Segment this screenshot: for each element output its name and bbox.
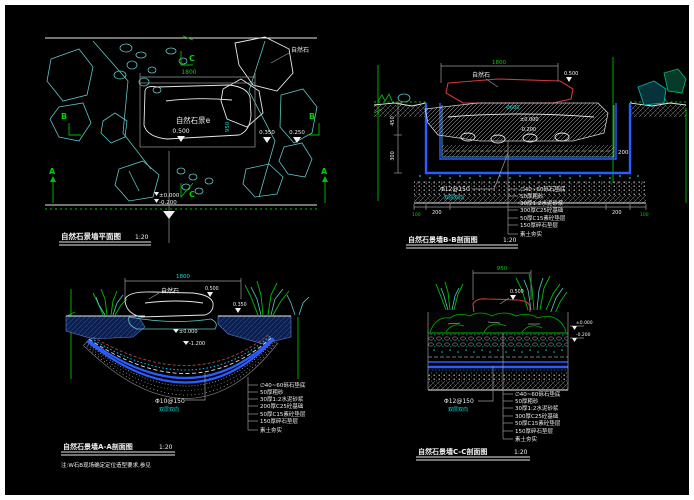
- cc-rebar-note: 双层双向: [448, 406, 468, 413]
- bb-dim-200-wall: 200: [618, 150, 629, 156]
- cc-callout-5: 50厚C15素砼垫层: [515, 419, 561, 427]
- cc-callout-3: 30厚1:2水泥砂浆: [515, 404, 559, 412]
- aa-callout-4: 200厚C25砼基础: [260, 402, 304, 410]
- bb-dim-300: 300: [390, 151, 396, 161]
- section-marker-a-right: A: [321, 167, 328, 176]
- bb-callout-1: ∅40~60砾石垫底: [520, 185, 566, 193]
- plan-elev-right2: 0.250: [289, 130, 305, 136]
- aa-bowl-layers: [83, 335, 278, 399]
- bb-callout-3: 30厚1:2水泥砂浆: [520, 199, 564, 207]
- bb-title-block: 自然石景墙B-B剖面图 1:20: [406, 235, 518, 248]
- cc-callout-1: ∅40~60砾石垫底: [515, 390, 561, 398]
- aa-elev-zero: ±0.000: [179, 329, 198, 335]
- plan-elev-stone: 0.500: [172, 128, 189, 135]
- aa-callout-7: 素土夯实: [260, 426, 283, 434]
- plan-title-block: 自然石景墙平面图 1:20: [59, 231, 151, 245]
- section-marker-b-right: B: [309, 112, 315, 121]
- plan-stone-label: 自然石: [291, 46, 309, 54]
- cc-callout-7: 素土夯实: [515, 435, 538, 443]
- bb-dim-top: 1800: [492, 60, 506, 66]
- plan-labels: 自然石 自然石景e 0.500 0.350 0.250 ±0.000 -0.20…: [154, 46, 309, 219]
- bb-dim-100-right: 100: [640, 212, 649, 218]
- cc-callout-6: 150厚碎石垫层: [515, 427, 553, 435]
- cc-rock-band: [428, 312, 568, 333]
- bb-dim-200-br: 200: [612, 210, 622, 216]
- cc-callout-2: 50厚粗砂: [515, 397, 539, 405]
- plan-center-text: 自然石景e: [176, 115, 211, 125]
- plan-title-scale: 1:20: [135, 234, 149, 241]
- aa-rebar-note: 双层双向: [159, 406, 179, 413]
- bb-dim-100-left: 100: [412, 212, 421, 218]
- bb-title: 自然石景墙B-B剖面图: [408, 235, 478, 244]
- plan-elev-neg: -0.200: [159, 200, 177, 206]
- bb-rebar-note: 双层双向: [444, 194, 464, 201]
- plan-dim-width: 1800: [181, 69, 196, 76]
- cc-right-elevations: ±0.000 -0.200: [570, 320, 593, 342]
- section-aa-drawing: 1800: [33, 259, 381, 481]
- plan-elev-zero: ±0.000: [159, 193, 180, 199]
- cad-sheet: 1800 950 自然石 自然石景e 0.500 0.350 0.250 ±0.…: [0, 0, 694, 500]
- plan-dim-height: 950: [225, 121, 231, 132]
- bb-callout-6: 150厚碎石垫层: [520, 221, 558, 229]
- aa-title: 自然石景墙A-A剖面图: [63, 442, 133, 451]
- aa-elev-neg: -1.200: [189, 341, 205, 347]
- aa-callout-5: 50厚C15素砼垫层: [260, 410, 306, 418]
- cc-title-scale: 1:20: [514, 449, 528, 456]
- cc-stone: 0.500: [473, 289, 530, 314]
- bb-dim-200-bl: 200: [432, 210, 442, 216]
- bb-elev-zero: ±0.000: [520, 117, 539, 123]
- bb-stone: [425, 79, 608, 143]
- aa-callout-1: ∅40~60砾石垫底: [260, 381, 306, 389]
- cc-rebar: Φ12@150: [444, 398, 474, 405]
- cc-elev-zero: ±0.000: [576, 320, 593, 326]
- cc-plants: [436, 274, 567, 316]
- section-marker-b-left: B: [61, 112, 67, 121]
- aa-rebar: Φ10@150: [155, 398, 185, 405]
- aa-callout-6: 150厚碎石垫层: [260, 417, 298, 425]
- bb-elev-neg: -0.200: [520, 127, 536, 133]
- aa-callout-2: 50厚粗砂: [260, 388, 284, 396]
- cc-dim-top: 950: [497, 266, 508, 272]
- bb-callout-4: 300厚C25砼基础: [520, 206, 564, 214]
- cc-title: 自然石景墙C-C剖面图: [418, 447, 487, 456]
- aa-title-block: 自然石景墙A-A剖面图 1:20 注:W石B现场确定定位造型要求,参见: [61, 442, 175, 469]
- cc-callout-4: 300厚C25砼基础: [515, 412, 559, 420]
- section-cc-drawing: 950 0.500: [388, 258, 694, 466]
- cc-elev-neg: -0.200: [576, 332, 591, 338]
- plan-view-drawing: 1800 950 自然石 自然石景e 0.500 0.350 0.250 ±0.…: [33, 21, 345, 259]
- aa-elev-right: 0.350: [233, 302, 247, 308]
- plan-elev-right1: 0.350: [259, 130, 275, 136]
- cc-elev-stone: 0.500: [510, 289, 524, 295]
- aa-stone-label: 自然石: [161, 287, 179, 295]
- aa-annotations: 自然石 0.500 0.350 ±0.000 -1.200 Φ10@150 双层…: [149, 286, 247, 413]
- aa-note: 注:W石B现场确定定位造型要求,参见: [61, 461, 151, 469]
- bb-rebar: Φ12@150: [440, 186, 470, 193]
- bb-stone-label: 自然石: [472, 71, 490, 79]
- section-marker-c-top: C: [189, 54, 195, 63]
- cc-title-block: 自然石景墙C-C剖面图 1:20: [416, 447, 530, 460]
- plan-title: 自然石景墙平面图: [61, 231, 121, 241]
- aa-callouts: ∅40~60砾石垫底 50厚粗砂 30厚1:2水泥砂浆 200厚C25砼基础 5…: [248, 377, 306, 434]
- bb-stone-dia: Φ600: [506, 105, 519, 111]
- bb-callout-2: 50厚粗砂: [520, 192, 544, 200]
- section-bb-drawing: 1800 450 300 200 100 200 200 100 自然石 0.5…: [368, 53, 694, 253]
- bb-callout-7: 素土夯实: [520, 230, 543, 238]
- aa-callout-3: 30厚1:2水泥砂浆: [260, 395, 304, 403]
- bb-dim-450: 450: [390, 116, 396, 126]
- bb-callout-5: 50厚C15素砼垫层: [520, 214, 566, 222]
- aa-dim-top: 1800: [176, 274, 190, 280]
- aa-title-scale: 1:20: [159, 444, 173, 451]
- bb-elev-top: 0.500: [564, 71, 578, 77]
- bb-title-scale: 1:20: [503, 237, 517, 244]
- section-marker-c-bottom: C: [189, 190, 195, 199]
- section-marker-a-left: A: [49, 167, 56, 176]
- aa-elev-stone: 0.500: [205, 286, 219, 292]
